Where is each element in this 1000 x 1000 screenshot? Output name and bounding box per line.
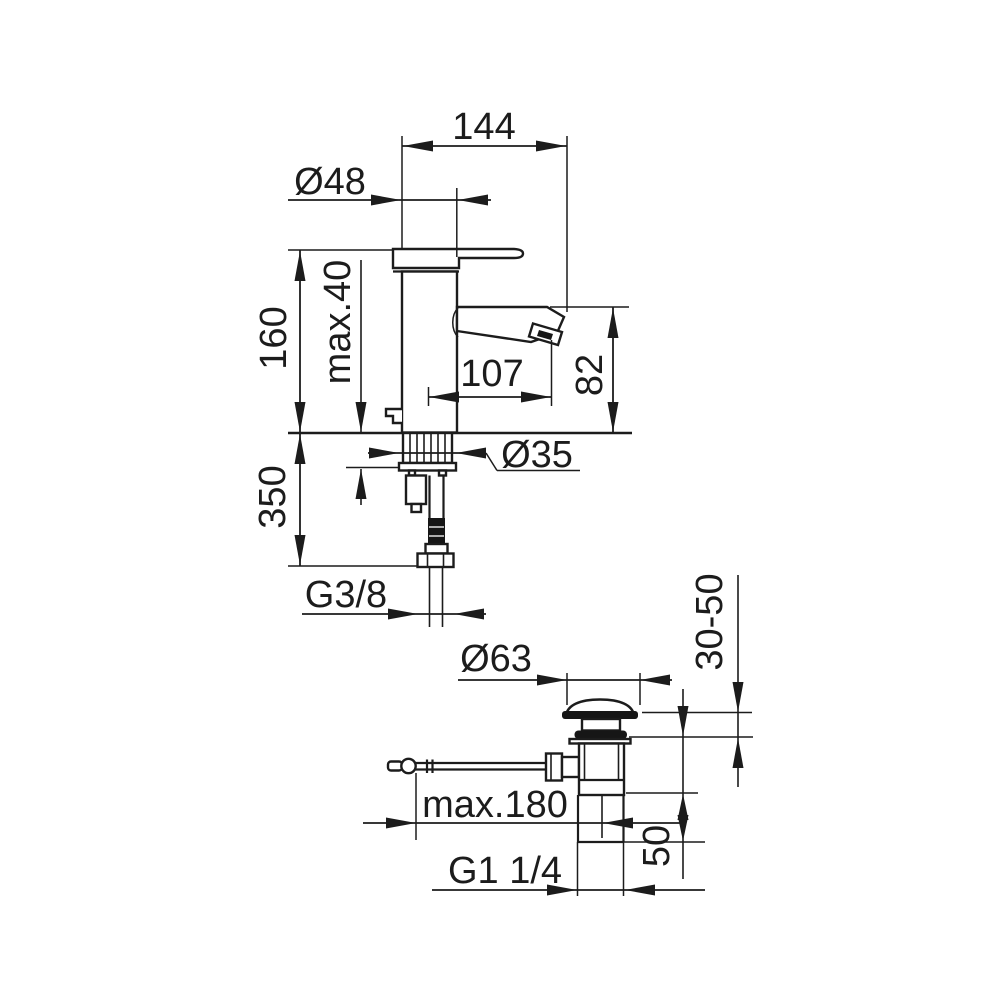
dim-deck-thickness: max.40	[317, 260, 359, 385]
pull-rod	[388, 759, 546, 773]
dim-total-depth: 144	[452, 106, 515, 148]
dim-hole-diameter: Ø35	[501, 434, 573, 476]
plug-seal	[575, 731, 628, 740]
dim-clamping-range: 30-50	[689, 573, 731, 670]
dim-supply-thread: G3/8	[305, 574, 387, 616]
dim-spout-reach: 107	[460, 353, 523, 395]
dim-connection-length: 350	[252, 465, 294, 528]
dim-outlet-height: 82	[569, 354, 611, 396]
dim-rod-length: max.180	[422, 784, 568, 826]
rod-joint-inner	[562, 757, 579, 777]
clamping-stud	[406, 476, 426, 505]
dim-tail-length: 50	[636, 825, 678, 867]
dim-flange-diameter: Ø63	[460, 638, 532, 680]
faucet-body	[402, 272, 457, 433]
flange-rim	[562, 711, 638, 719]
g38-nut	[418, 554, 454, 568]
rod-joint-outer	[546, 754, 562, 781]
tail-pipe	[578, 795, 624, 842]
drain-body	[579, 744, 624, 796]
dim-body-diameter: Ø48	[294, 161, 366, 203]
dim-waste-thread: G1 1/4	[448, 850, 562, 892]
plug-neck	[582, 719, 620, 731]
washer-tab-right	[439, 471, 446, 476]
dim-height: 160	[253, 306, 295, 369]
stud-tip	[412, 504, 422, 512]
clamping-washer	[399, 463, 456, 471]
pull-rod-knob-faucet	[386, 409, 402, 423]
faucet-handle	[393, 249, 523, 268]
dimensions-drain: Ø63 30-50 50 max.180 G1 1/4	[363, 573, 753, 896]
technical-drawing: 144 Ø48 160 max.40 107 82	[0, 0, 1000, 1000]
